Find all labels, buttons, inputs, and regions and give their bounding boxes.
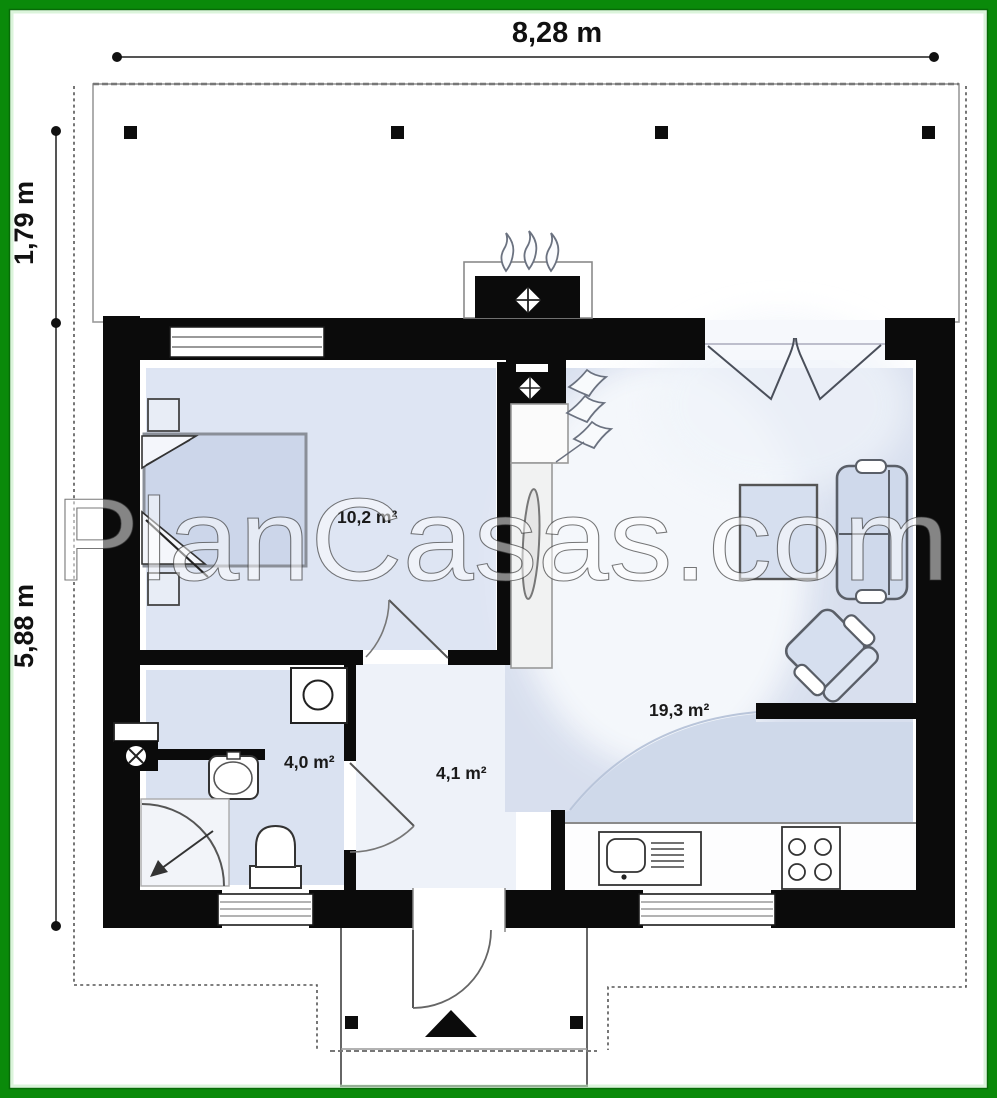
- svg-text:PlanCasas.com: PlanCasas.com: [55, 474, 950, 605]
- svg-text:4,1 m²: 4,1 m²: [436, 763, 487, 783]
- svg-text:19,3 m²: 19,3 m²: [649, 700, 709, 720]
- svg-text:4,0 m²: 4,0 m²: [284, 752, 335, 772]
- svg-text:8,28 m: 8,28 m: [512, 17, 602, 49]
